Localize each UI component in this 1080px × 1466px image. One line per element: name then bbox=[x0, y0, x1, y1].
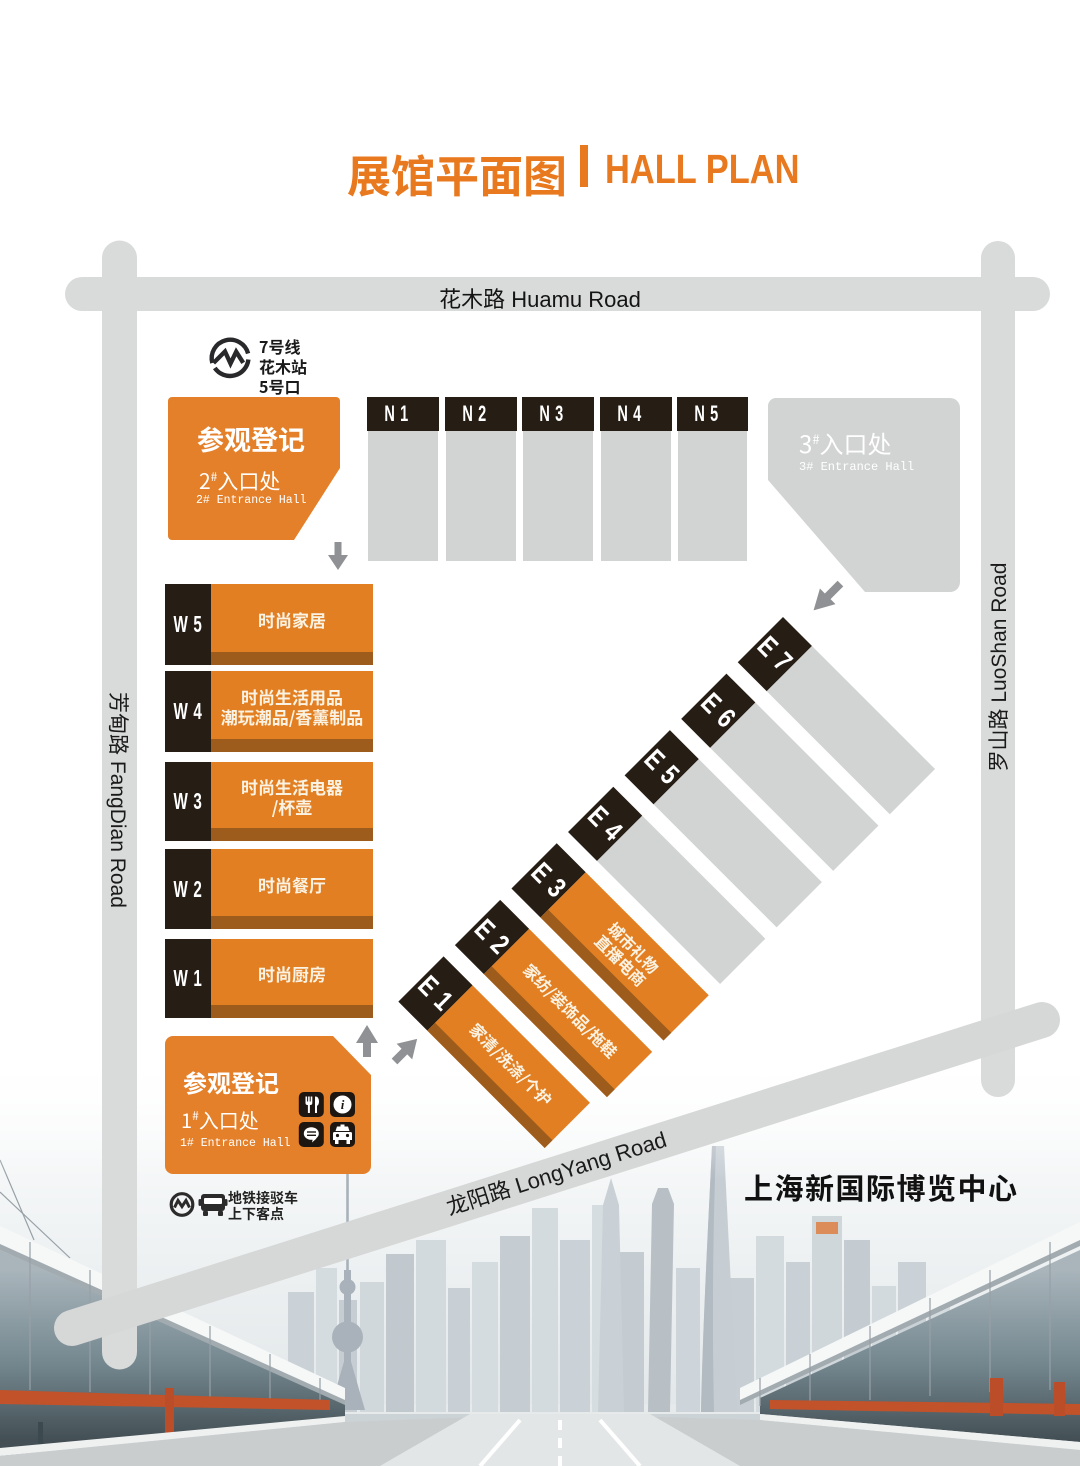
svg-text:i: i bbox=[341, 1097, 345, 1112]
